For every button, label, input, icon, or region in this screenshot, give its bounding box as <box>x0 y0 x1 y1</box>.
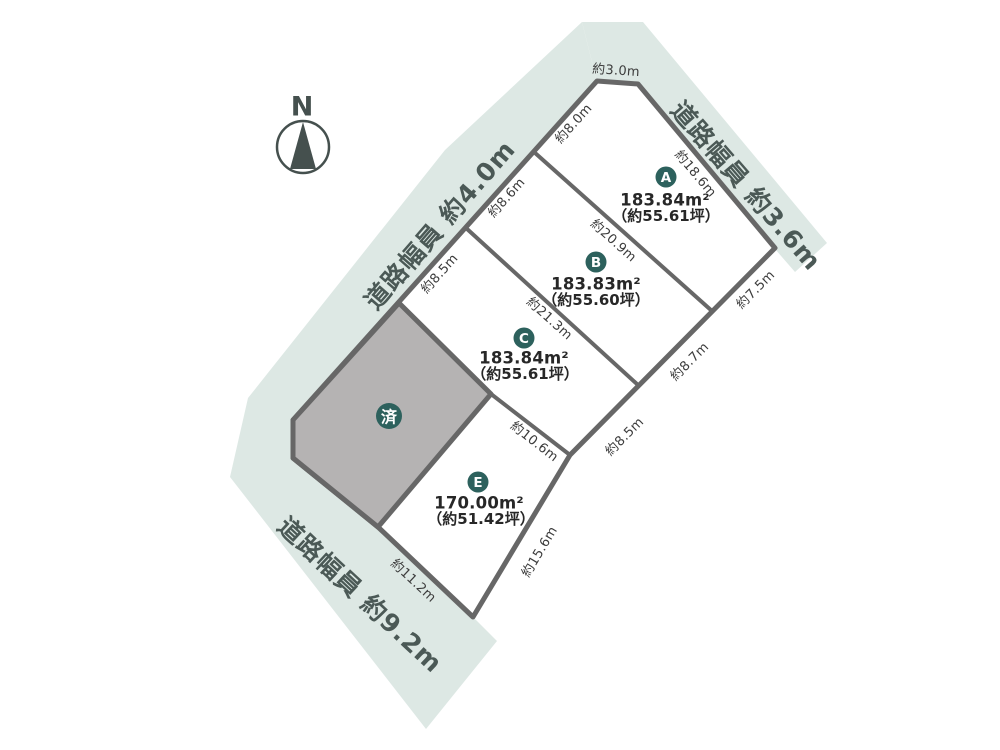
compass-north-label: N <box>291 92 314 123</box>
lot-a-tsubo: （約55.61坪） <box>612 207 719 225</box>
lot-e-badge-letter: E <box>473 475 482 491</box>
lot-a-badge-letter: A <box>661 170 672 186</box>
lot-e-tsubo: （約51.42坪） <box>427 510 534 528</box>
compass: N <box>277 92 329 174</box>
lot-sold-badge-letter: 済 <box>381 408 398 427</box>
lot-c-badge-letter: C <box>519 331 529 347</box>
lot-b-badge-letter: B <box>591 255 601 271</box>
lot-b-tsubo: （約55.60坪） <box>542 291 649 309</box>
dim-right-c: 約8.5m <box>603 415 647 459</box>
land-plot-map: 道路幅員 約3.6m 道路幅員 約4.0m 道路幅員 約9.2m 約3.0m 約… <box>0 0 1000 750</box>
lot-sold-label: 済 <box>376 403 402 429</box>
compass-needle-icon <box>290 122 316 169</box>
lot-c-tsubo: （約55.61坪） <box>471 365 578 383</box>
